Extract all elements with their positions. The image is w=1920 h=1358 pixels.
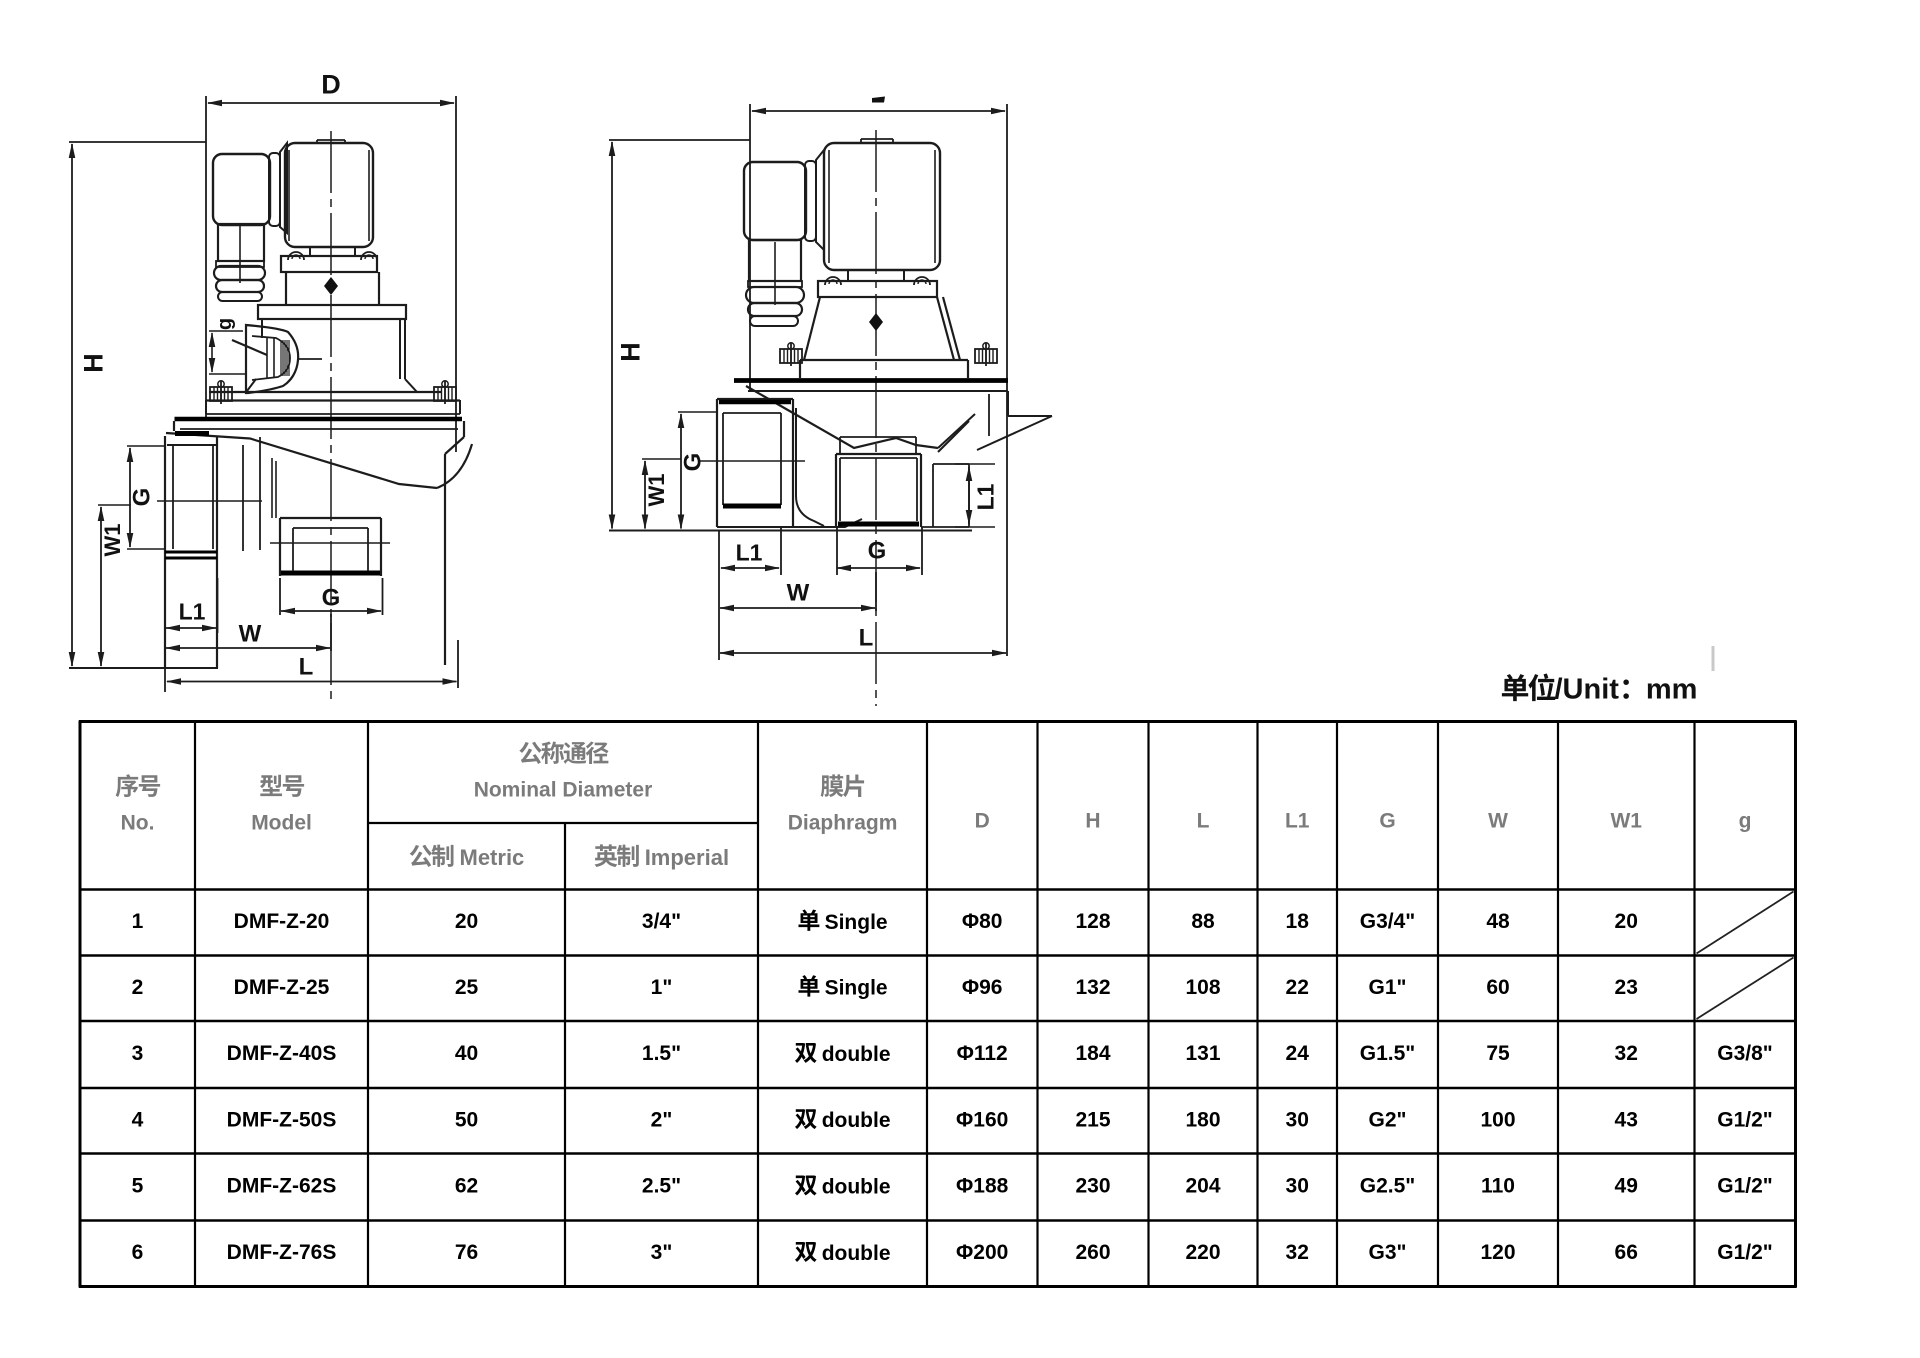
svg-text:22: 22 — [1286, 976, 1309, 999]
svg-text:20: 20 — [1615, 910, 1638, 933]
svg-text:76: 76 — [455, 1241, 478, 1264]
svg-text:G1.5": G1.5" — [1360, 1042, 1415, 1065]
svg-text:1": 1" — [651, 976, 673, 999]
svg-text:3": 3" — [651, 1241, 673, 1264]
svg-text:43: 43 — [1615, 1108, 1638, 1131]
svg-text:H: H — [79, 353, 109, 373]
svg-text:G1/2": G1/2" — [1717, 1175, 1772, 1198]
svg-text:double: double — [822, 1175, 891, 1198]
svg-text:G3": G3" — [1369, 1241, 1407, 1264]
svg-text:Φ200: Φ200 — [956, 1241, 1008, 1264]
svg-text:DMF-Z-76S: DMF-Z-76S — [227, 1241, 337, 1264]
svg-text:75: 75 — [1486, 1042, 1510, 1065]
svg-text:18: 18 — [1286, 910, 1310, 933]
svg-text:G: G — [322, 585, 341, 612]
svg-text:G1/2": G1/2" — [1717, 1108, 1772, 1131]
svg-text:184: 184 — [1075, 1042, 1110, 1065]
svg-text:24: 24 — [1286, 1042, 1310, 1065]
svg-text:double: double — [822, 1109, 891, 1132]
svg-text:double: double — [822, 1242, 891, 1265]
svg-text:3/4": 3/4" — [642, 910, 681, 933]
svg-text:W1: W1 — [644, 474, 669, 507]
svg-text:Imperial: Imperial — [645, 845, 729, 870]
svg-text:30: 30 — [1286, 1175, 1309, 1198]
svg-text:4: 4 — [132, 1108, 144, 1131]
svg-text:32: 32 — [1615, 1042, 1638, 1065]
svg-text:G: G — [1379, 810, 1395, 833]
svg-text:260: 260 — [1075, 1241, 1110, 1264]
svg-text:/Unit: /Unit — [1555, 674, 1620, 706]
svg-text:Model: Model — [251, 812, 312, 835]
svg-text:2: 2 — [132, 976, 144, 999]
svg-text:6: 6 — [132, 1241, 144, 1264]
svg-text:Single: Single — [825, 911, 888, 934]
svg-text:Φ188: Φ188 — [956, 1175, 1009, 1198]
svg-text:G: G — [129, 488, 156, 507]
svg-text:180: 180 — [1185, 1108, 1220, 1131]
svg-text:132: 132 — [1075, 976, 1110, 999]
svg-text:G2.5": G2.5" — [1360, 1175, 1415, 1198]
svg-text:62: 62 — [455, 1175, 478, 1198]
svg-text:1: 1 — [132, 910, 144, 933]
svg-text:128: 128 — [1075, 910, 1110, 933]
svg-text:30: 30 — [1286, 1108, 1309, 1131]
svg-text:double: double — [822, 1043, 891, 1066]
svg-text:204: 204 — [1185, 1175, 1220, 1198]
svg-text:20: 20 — [455, 910, 478, 933]
svg-text:220: 220 — [1185, 1241, 1220, 1264]
svg-text:L1: L1 — [972, 483, 998, 510]
svg-text:131: 131 — [1185, 1042, 1220, 1065]
svg-text:230: 230 — [1075, 1175, 1110, 1198]
svg-text:108: 108 — [1185, 976, 1220, 999]
svg-text:120: 120 — [1480, 1241, 1515, 1264]
svg-text:50: 50 — [455, 1108, 478, 1131]
svg-text:2": 2" — [651, 1108, 673, 1131]
svg-text:D: D — [975, 810, 990, 833]
svg-text:W: W — [1488, 810, 1508, 833]
svg-text:40: 40 — [455, 1042, 478, 1065]
svg-text:2.5": 2.5" — [642, 1175, 681, 1198]
svg-text:L: L — [859, 625, 874, 652]
svg-text:1.5": 1.5" — [642, 1042, 681, 1065]
svg-text:G1": G1" — [1369, 976, 1407, 999]
svg-text:L: L — [299, 654, 314, 681]
svg-text:L: L — [1197, 810, 1210, 833]
svg-text:Nominal Diameter: Nominal Diameter — [474, 779, 653, 802]
svg-text:W: W — [239, 621, 262, 648]
svg-text:L1: L1 — [1285, 810, 1310, 833]
svg-text:100: 100 — [1480, 1108, 1515, 1131]
svg-text:g: g — [1739, 810, 1752, 833]
svg-text:110: 110 — [1481, 1175, 1515, 1198]
svg-text:Φ96: Φ96 — [962, 976, 1003, 999]
svg-text:49: 49 — [1615, 1175, 1638, 1198]
svg-text:32: 32 — [1286, 1241, 1309, 1264]
svg-text:Diaphragm: Diaphragm — [788, 812, 898, 835]
svg-text:W1: W1 — [1610, 810, 1642, 833]
svg-text:G: G — [868, 538, 887, 565]
svg-text:G: G — [680, 453, 707, 472]
svg-text:Metric: Metric — [460, 845, 525, 870]
svg-text:H: H — [616, 342, 646, 362]
svg-text:DMF-Z-25: DMF-Z-25 — [234, 976, 330, 999]
svg-text:Φ80: Φ80 — [962, 910, 1003, 933]
svg-text:25: 25 — [455, 976, 479, 999]
svg-text:23: 23 — [1615, 976, 1638, 999]
svg-text:66: 66 — [1615, 1241, 1638, 1264]
svg-text:H: H — [1085, 810, 1100, 833]
svg-text:L1: L1 — [736, 539, 763, 565]
svg-text:DMF-Z-20: DMF-Z-20 — [234, 910, 330, 933]
svg-text:Φ160: Φ160 — [956, 1108, 1008, 1131]
svg-text:Single: Single — [825, 977, 888, 1000]
svg-text:Φ112: Φ112 — [957, 1042, 1008, 1065]
svg-text:L1: L1 — [179, 598, 206, 624]
svg-text:60: 60 — [1486, 976, 1509, 999]
svg-text:G3/4": G3/4" — [1360, 910, 1415, 933]
svg-text:48: 48 — [1486, 910, 1510, 933]
svg-text:88: 88 — [1191, 910, 1215, 933]
svg-text:DMF-Z-50S: DMF-Z-50S — [227, 1108, 337, 1131]
svg-text:No.: No. — [121, 812, 155, 835]
svg-text:5: 5 — [132, 1175, 144, 1198]
svg-text:DMF-Z-40S: DMF-Z-40S — [227, 1042, 337, 1065]
svg-text:D: D — [321, 70, 341, 100]
svg-text:W1: W1 — [100, 524, 125, 557]
svg-text:W: W — [787, 580, 810, 607]
svg-text:DMF-Z-62S: DMF-Z-62S — [227, 1175, 337, 1198]
svg-text:3: 3 — [132, 1042, 144, 1065]
svg-text:G3/8": G3/8" — [1717, 1042, 1772, 1065]
svg-text:mm: mm — [1646, 674, 1698, 706]
svg-text:215: 215 — [1075, 1108, 1110, 1131]
svg-text:g: g — [214, 318, 236, 330]
svg-text:G2": G2" — [1369, 1108, 1407, 1131]
svg-text:G1/2": G1/2" — [1717, 1241, 1772, 1264]
